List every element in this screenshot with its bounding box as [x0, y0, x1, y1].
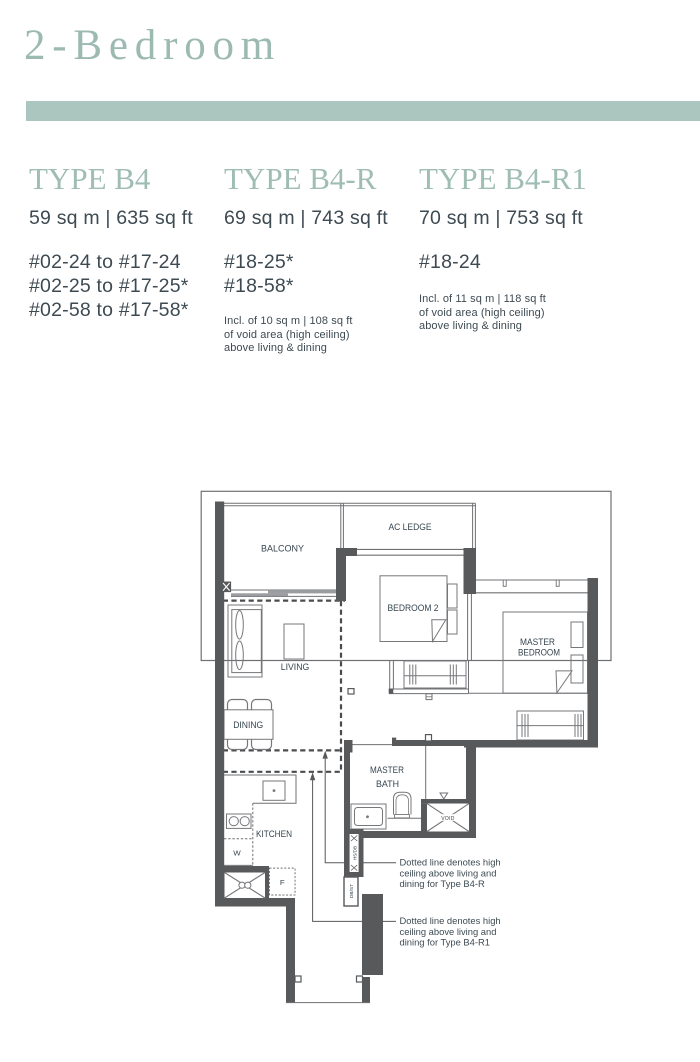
- svg-text:MASTER: MASTER: [370, 765, 404, 775]
- svg-text:ceiling above living and: ceiling above living and: [400, 867, 497, 878]
- svg-text:dining for Type B4-R1: dining for Type B4-R1: [400, 937, 491, 948]
- svg-text:KITCHEN: KITCHEN: [256, 829, 292, 839]
- svg-text:W: W: [233, 849, 241, 858]
- svg-text:HS/DB: HS/DB: [353, 846, 358, 860]
- svg-text:BEDROOM 2: BEDROOM 2: [388, 603, 439, 613]
- svg-text:AC LEDGE: AC LEDGE: [389, 522, 432, 532]
- svg-text:BALCONY: BALCONY: [261, 543, 304, 553]
- svg-text:MASTER: MASTER: [520, 637, 555, 647]
- svg-text:VOID: VOID: [441, 816, 455, 822]
- svg-text:BEDROOM: BEDROOM: [518, 648, 560, 658]
- svg-text:LIVING: LIVING: [281, 662, 310, 672]
- svg-text:Dotted line denotes high: Dotted line denotes high: [400, 915, 501, 926]
- svg-text:ceiling above living and: ceiling above living and: [400, 926, 497, 937]
- svg-text:DB/ST: DB/ST: [349, 884, 355, 898]
- svg-text:BATH: BATH: [376, 779, 399, 789]
- svg-text:F: F: [280, 878, 285, 887]
- svg-text:DINING: DINING: [233, 720, 263, 730]
- svg-text:dining for Type B4-R: dining for Type B4-R: [400, 878, 486, 889]
- svg-text:Dotted line denotes high: Dotted line denotes high: [400, 857, 501, 868]
